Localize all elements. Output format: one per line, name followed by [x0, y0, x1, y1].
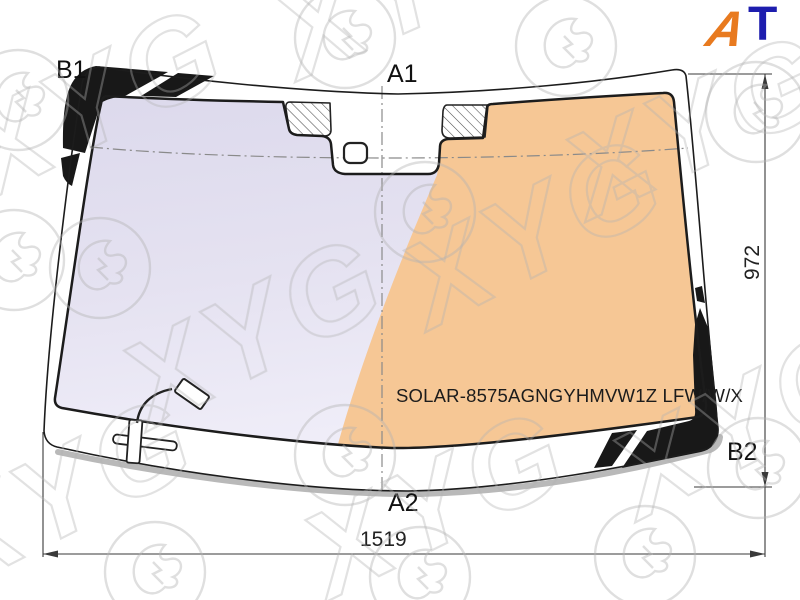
part-number: SOLAR-8575AGNGYHMVW1Z LFW/W/X — [396, 387, 743, 406]
sensor-hatch-left — [286, 102, 331, 136]
sensor-window — [344, 143, 367, 163]
wiper-clip — [126, 420, 142, 464]
at-logo-letter-a: A — [702, 4, 751, 54]
windshield-diagram: XYG XYG XYG XYG XYG XYG XYG XYG B1 A1 A2… — [0, 0, 800, 600]
marker-b2: B2 — [727, 440, 758, 465]
dimension-height-label: 972 — [742, 245, 763, 280]
marker-a1: A1 — [387, 62, 418, 87]
sensor-hatch-right — [442, 105, 488, 138]
at-logo: T A — [696, 1, 796, 59]
dimension-width-label: 1519 — [360, 529, 407, 550]
marker-b1: B1 — [56, 58, 87, 83]
at-logo-letter-t: T — [748, 1, 777, 49]
marker-a2: A2 — [388, 491, 419, 516]
